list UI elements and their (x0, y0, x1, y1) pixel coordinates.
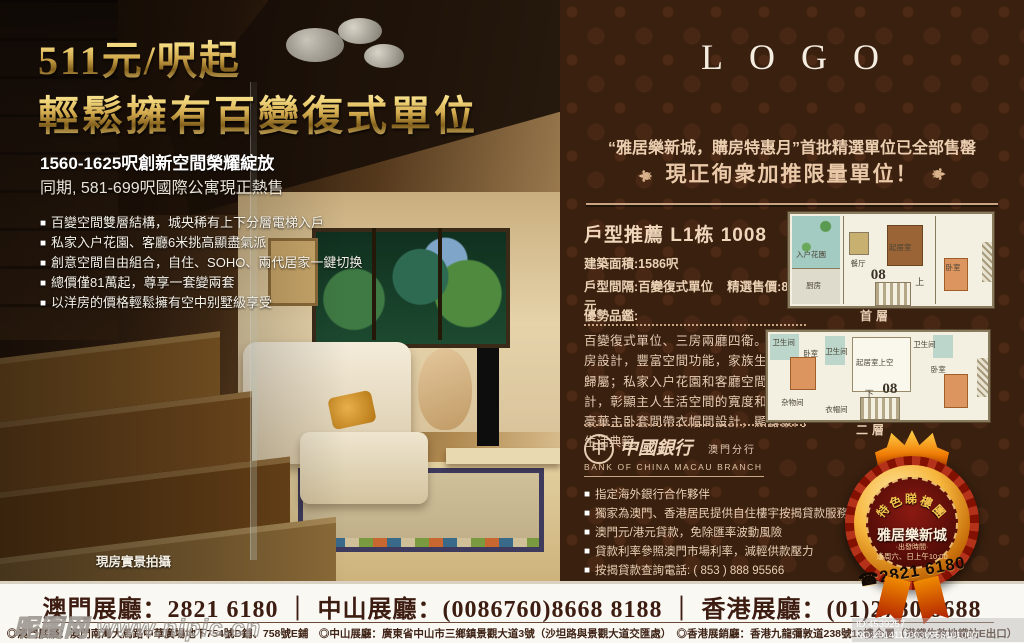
bank-service-text: 按揭貸款查詢電話: ( 853 ) 888 95566 (595, 565, 784, 577)
room-label: 杂物间 (781, 397, 804, 408)
bank-service-text: 獨家為澳門、香港居民提供自住樓宇按揭貸款服務 (595, 508, 848, 520)
square-bullet-icon: ■ (40, 218, 46, 229)
room-label: 餐厅 (851, 258, 866, 269)
room-label: 起居室 (889, 242, 912, 253)
unit-layout: 戶型間隔:百變復式單位 (584, 280, 713, 294)
bank-service: ■按揭貸款查詢電話: ( 853 ) 888 95566 (584, 562, 848, 581)
unit-number-label: 08 (882, 381, 897, 398)
plan-stairs (860, 397, 899, 420)
selling-point-text: 總價僅81萬起，尊享一套變兩套 (51, 275, 234, 290)
room-label: 起居室上空 (856, 357, 894, 368)
selling-point: ■以洋房的價格輕鬆擁有空中别墅級享受 (40, 292, 362, 312)
room-label: 衣帽间 (825, 404, 848, 415)
room-label: 卧室 (946, 262, 961, 273)
unit-area: 建築面積:1586呎 (584, 253, 678, 272)
room-label: 卫生间 (825, 346, 848, 357)
stair-direction-label: 上 (915, 275, 924, 288)
bank-service: ■澳門元/港元貸款，免除匯率波動風險 (584, 524, 848, 543)
bank-service-text: 指定海外銀行合作夥伴 (595, 489, 710, 501)
dotted-divider (584, 324, 806, 326)
bank-service-text: 澳門元/港元貸款，免除匯率波動風險 (595, 527, 782, 539)
room-label: 卧室 (931, 364, 946, 375)
headline-price: 511元/呎起 (38, 28, 241, 86)
boc-name-en: BANK OF CHINA MACAU BRANCH (584, 462, 763, 472)
plan-balcony-hatch (982, 242, 992, 282)
nipic-watermark: 昵图网 www.nipic.cn (14, 608, 261, 643)
selling-point-text: 以洋房的價格輕鬆擁有空中别墅級享受 (51, 295, 272, 310)
selling-points-list: ■百變空間雙層結構，城央稀有上下分層電梯入戶 ■私家入户花園、客廳6米挑高顯盡氣… (40, 212, 362, 312)
room-label: 厨房 (806, 280, 821, 291)
fleur-de-lis-icon: ⚜ (637, 166, 657, 183)
advantage-label: 優勢品鑑: (584, 305, 638, 324)
bank-service-text: 貸款利率參照澳門市場利率，減輕供款壓力 (595, 546, 814, 558)
boc-branch-cn: 澳門分行 (708, 441, 756, 456)
bank-service: ■獨家為澳門、香港居民提供自住樓宇按揭貸款服務 (584, 505, 848, 524)
bank-service: ■貸款利率參照澳門市場利率，減輕供款壓力 (584, 543, 848, 562)
selling-point: ■百變空間雙層結構，城央稀有上下分層電梯入戶 (40, 212, 362, 232)
square-bullet-icon: ■ (584, 508, 590, 519)
photo-caption: 現房實景拍攝 (96, 551, 171, 570)
selling-point: ■創意空間自由組合，自住、SOHO、兩代居家一鍵切换 (40, 252, 362, 272)
room-label: 入户花園 (796, 249, 826, 260)
subtitle-apartment: 同期, 581-699呎國際公寓現正熱售 (40, 174, 284, 198)
property-ad-poster: 511元/呎起 輕鬆擁有百變復式單位 1560-1625呎創新空間榮耀綻放 同期… (0, 0, 1024, 643)
selling-point-text: 創意空間自由組合，自住、SOHO、兩代居家一鍵切换 (51, 255, 362, 270)
plan-wall (843, 216, 844, 304)
section-divider (586, 203, 998, 205)
bank-services-list: ■指定海外銀行合作夥伴 ■獨家為澳門、香港居民提供自住樓宇按揭貸款服務 ■澳門元… (584, 486, 848, 581)
boc-coin-icon: 中 (584, 434, 614, 464)
floorplan-first-level: 入户花園 厨房 餐厅 起居室 卧室 08 上 (788, 212, 994, 308)
selling-point-text: 私家入户花園、客廳6米挑高顯盡氣派 (51, 235, 266, 250)
selling-point-text: 百變空間雙層結構，城央稀有上下分層電梯入戶 (51, 215, 324, 230)
floorplan-caption-first: 首層 (860, 307, 892, 324)
right-info-panel: LOGO “雅居樂新城，購房特惠月”首批精選單位已全部售罄 ⚜現正徇衆加推限量單… (560, 0, 1024, 581)
square-bullet-icon: ■ (584, 527, 590, 538)
developer-logo: LOGO (560, 36, 1024, 78)
plan-bed (944, 374, 968, 408)
headline-slogan: 輕鬆擁有百變復式單位 (38, 82, 478, 142)
square-bullet-icon: ■ (40, 238, 46, 249)
plan-dining-table (849, 232, 869, 254)
unit-recommendation-heading: 戶型推薦 L1栋 1008 (584, 220, 767, 247)
room-label: 卧室 (803, 348, 818, 359)
room-label: 卫生间 (772, 337, 795, 348)
tour-badge: 特 色 睇 樓 團 雅居樂新城 ·出發時間· 逢周六、日上午10:00 ☎282… (842, 430, 982, 608)
floorplan-second-level: 卫生间 卧室 卫生间 起居室上空 卫生间 卧室 杂物间 衣帽间 下 08 (766, 330, 990, 422)
plan-bed (790, 357, 816, 391)
arc-char: 睇 (905, 490, 917, 507)
promo-subheadline: ⚜現正徇衆加推限量單位！⚜ (560, 158, 1024, 188)
subtitle-area-range: 1560-1625呎創新空間榮耀綻放 (40, 149, 274, 174)
stock-id-watermark: ID:4539257 NO:20141110030956101000 (852, 618, 1024, 642)
square-bullet-icon: ■ (584, 565, 590, 576)
plan-stairs (875, 282, 911, 306)
plan-balcony-hatch (977, 358, 988, 397)
unit-number-label: 08 (871, 267, 886, 284)
boc-underline (584, 476, 764, 477)
promo-subheadline-text: 現正徇衆加推限量單位！ (666, 163, 919, 186)
selling-point: ■總價僅81萬起，尊享一套變兩套 (40, 272, 362, 292)
square-bullet-icon: ■ (40, 258, 46, 269)
stair-direction-label: 下 (865, 387, 874, 400)
square-bullet-icon: ■ (584, 546, 590, 557)
selling-point: ■私家入户花園、客廳6米挑高顯盡氣派 (40, 232, 362, 252)
living-room-photo: 511元/呎起 輕鬆擁有百變復式單位 1560-1625呎創新空間榮耀綻放 同期… (0, 0, 560, 581)
square-bullet-icon: ■ (40, 278, 46, 289)
room-label: 卫生间 (913, 339, 936, 350)
dotted-divider (584, 424, 806, 426)
bank-service: ■指定海外銀行合作夥伴 (584, 486, 848, 505)
boc-name-cn: 中國銀行 (620, 434, 692, 460)
square-bullet-icon: ■ (40, 298, 46, 309)
plan-wall (935, 216, 936, 304)
fleur-de-lis-icon: ⚜ (927, 166, 947, 183)
square-bullet-icon: ■ (584, 489, 590, 500)
promo-headline: “雅居樂新城，購房特惠月”首批精選單位已全部售罄 (560, 134, 1024, 158)
